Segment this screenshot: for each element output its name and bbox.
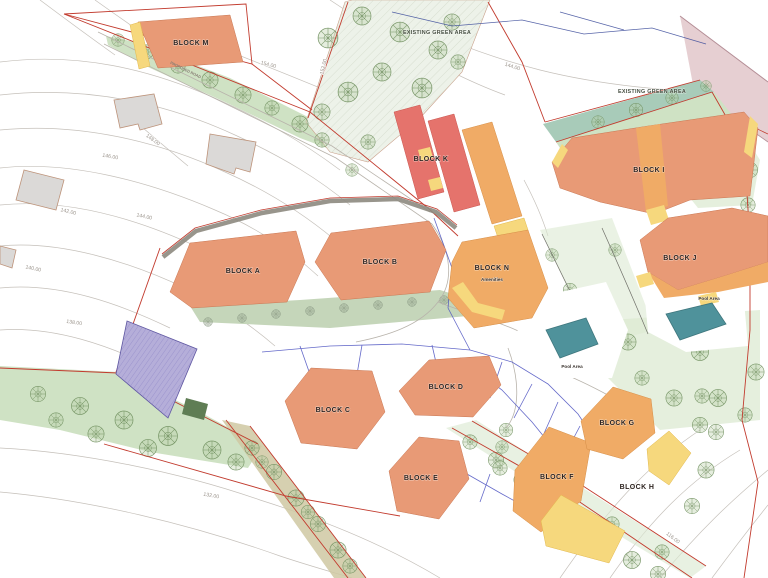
block-n-sublabel: Amenities [481,277,503,282]
block-k-label: BLOCK K [414,156,449,163]
pool-center-label: Pool Area [561,364,583,369]
block-n-label: BLOCK N [475,265,510,272]
contour-label: 132.00 [203,492,220,501]
existing-building [0,246,16,268]
contour-label: 142.00 [60,207,77,217]
contour-label: 146.00 [102,153,119,162]
existing-building [206,134,256,174]
contour-label: 140.00 [25,264,42,273]
block-h-bar1 [647,431,691,485]
existing-green-area-top-label: EXISTING GREEN AREA [403,30,471,36]
block-e-label: BLOCK E [404,475,438,482]
block-d-label: BLOCK D [429,384,464,391]
block-g-label: BLOCK G [599,420,634,427]
site-plan-canvas: BLOCK M BLOCK K BLOCK I BLOCK J BLOCK A … [0,0,768,578]
block-j-label: BLOCK J [663,255,697,262]
contour-label: 144.00 [504,62,521,73]
block-h-label: BLOCK H [620,484,655,491]
block-a-label: BLOCK A [226,268,260,275]
block-i-label: BLOCK I [633,167,665,174]
block-f-label: BLOCK F [540,474,574,481]
site-plan-page: BLOCK M BLOCK K BLOCK I BLOCK J BLOCK A … [0,0,768,578]
existing-green-area-right-label: EXISTING GREEN AREA [618,89,686,95]
block-b-label: BLOCK B [363,259,398,266]
contour-label: 144.00 [136,212,153,221]
pool-right-label: Pool Area [698,296,720,301]
existing-building [114,94,162,130]
block-c-label: BLOCK C [316,407,351,414]
block-m-label: BLOCK M [173,40,208,47]
contour-label: 154.00 [260,60,277,70]
contour-label: 138.00 [66,319,83,327]
